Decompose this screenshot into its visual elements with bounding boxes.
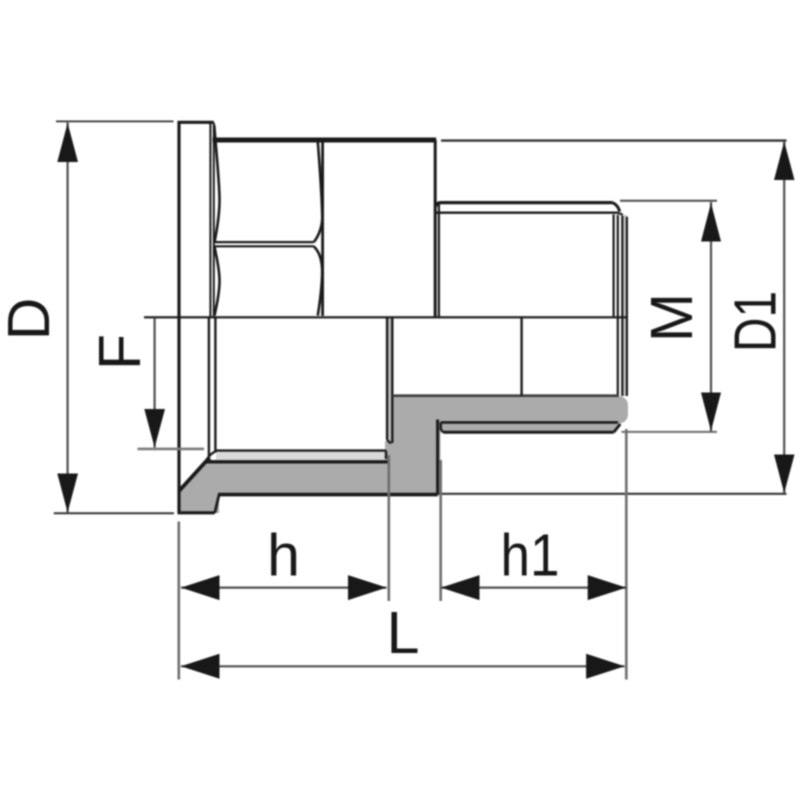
svg-text:F: F (87, 334, 153, 370)
svg-text:M: M (639, 293, 705, 342)
svg-text:D1: D1 (723, 291, 789, 352)
svg-text:D: D (0, 298, 62, 341)
svg-text:L: L (387, 600, 420, 666)
svg-text:h1: h1 (501, 522, 560, 588)
svg-text:h: h (267, 523, 300, 589)
